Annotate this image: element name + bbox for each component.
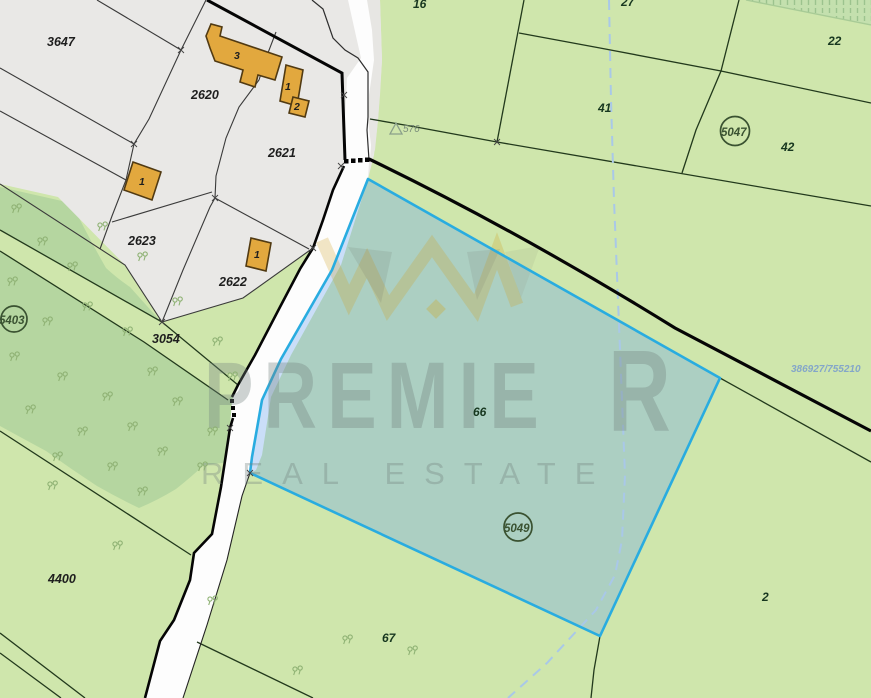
svg-text:27: 27 (620, 0, 636, 9)
svg-text:16: 16 (413, 0, 427, 11)
svg-text:3647: 3647 (47, 35, 76, 49)
svg-text:1: 1 (254, 249, 260, 261)
svg-text:2: 2 (761, 590, 769, 604)
svg-text:1: 1 (139, 176, 145, 188)
svg-text:386927/755210: 386927/755210 (791, 364, 861, 375)
svg-text:5047: 5047 (721, 127, 747, 139)
svg-text:66: 66 (473, 405, 487, 419)
svg-text:42: 42 (780, 140, 795, 154)
svg-text:3054: 3054 (152, 332, 180, 346)
svg-text:22: 22 (827, 34, 842, 48)
svg-text:1: 1 (285, 81, 291, 93)
svg-text:67: 67 (382, 631, 397, 645)
svg-text:R: R (608, 326, 671, 456)
svg-text:2623: 2623 (127, 234, 156, 248)
svg-text:PREMIE: PREMIE (204, 343, 549, 449)
svg-text:2620: 2620 (190, 88, 219, 102)
svg-text:5403: 5403 (0, 315, 25, 327)
svg-text:4400: 4400 (47, 572, 76, 586)
svg-text:REAL ESTATE: REAL ESTATE (201, 456, 614, 491)
svg-text:2621: 2621 (267, 146, 296, 160)
svg-text:576: 576 (403, 124, 420, 135)
svg-text:5049: 5049 (504, 523, 530, 535)
svg-text:41: 41 (597, 101, 612, 115)
svg-text:2: 2 (293, 101, 300, 113)
svg-text:2622: 2622 (218, 275, 247, 289)
svg-text:3: 3 (234, 50, 240, 62)
